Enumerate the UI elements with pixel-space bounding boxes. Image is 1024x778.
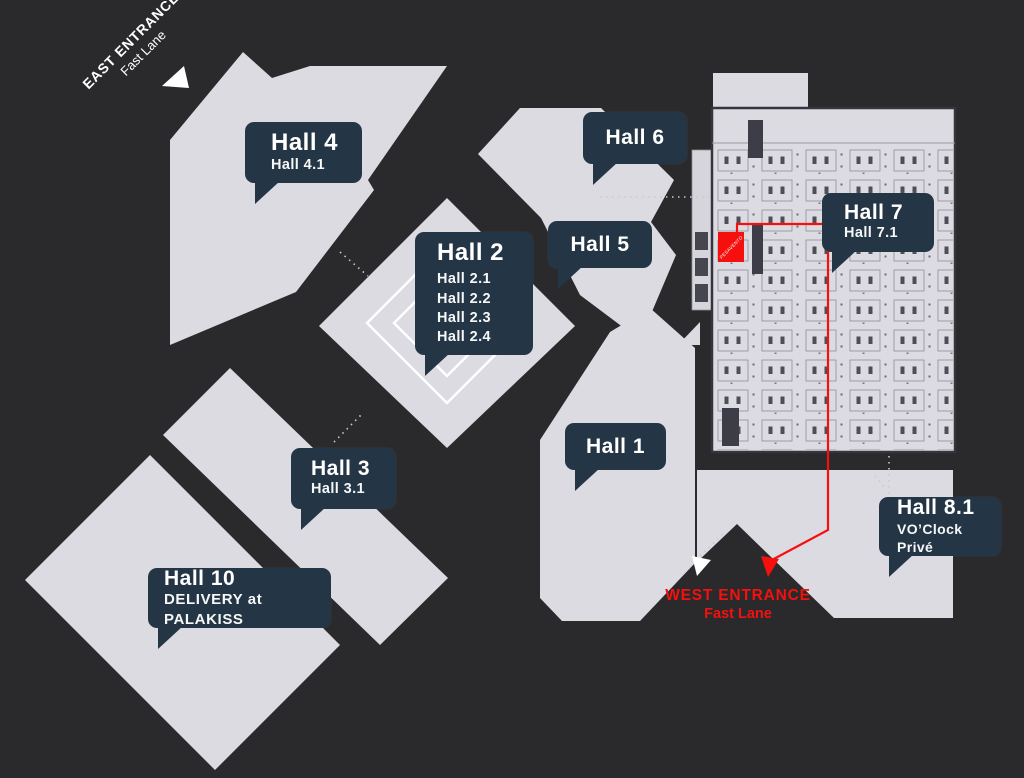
- hall-10-callout[interactable]: Hall 10 DELIVERY at PALAKISS: [148, 568, 331, 628]
- hall-2-subtitle: Hall 2.3: [437, 309, 519, 328]
- hall-1-title: Hall 1: [586, 435, 645, 458]
- floorplan-core-3: [722, 408, 739, 446]
- hall-7-callout[interactable]: Hall 7 Hall 7.1: [822, 193, 934, 252]
- dotted-path: [334, 414, 362, 442]
- hall-2-subtitle: Hall 2.2: [437, 290, 519, 309]
- hall-6-title: Hall 6: [605, 126, 664, 149]
- callout-tail: [158, 626, 183, 649]
- floorplan-booth-grid: [714, 145, 953, 450]
- west-entrance-label: WEST ENTRANCE Fast Lane: [655, 586, 821, 624]
- floorplan-core-1: [748, 120, 763, 158]
- callout-tail: [301, 507, 326, 530]
- west-entrance-red-arrow: [761, 556, 779, 577]
- callout-tail: [425, 353, 450, 376]
- hall-2-title: Hall 2: [437, 240, 519, 266]
- hall-3-subtitle: Hall 3.1: [311, 480, 382, 499]
- venue-map-canvas: PESAVENTO: [0, 0, 1024, 778]
- hall-8-1-title: Hall 8.1: [897, 496, 987, 519]
- callout-tail: [575, 468, 600, 491]
- hall-3-title: Hall 3: [311, 457, 382, 480]
- dotted-path: [340, 252, 368, 276]
- hall-1-callout[interactable]: Hall 1: [565, 423, 666, 470]
- west-entrance-white-arrow: [692, 556, 711, 576]
- hall-5-callout[interactable]: Hall 5: [548, 221, 652, 268]
- hall-2-subtitle: Hall 2.4: [437, 328, 519, 347]
- floorplan-core-2: [752, 224, 763, 274]
- east-entrance-arrow: [162, 66, 189, 88]
- west-entrance-subtitle: Fast Lane: [655, 605, 821, 623]
- hall-2-callout[interactable]: Hall 2 Hall 2.1 Hall 2.2 Hall 2.3 Hall 2…: [415, 232, 533, 355]
- hall-6-callout[interactable]: Hall 6: [583, 112, 687, 164]
- venue-map: PESAVENTO Hall 4 Hall 4.1 Hall 2 Hall 2.…: [0, 0, 1024, 778]
- hall-4-subtitle: Hall 4.1: [271, 156, 348, 175]
- hall-8-1-subtitle: VO’Clock Privé: [897, 520, 987, 557]
- floorplan-annex-tab: [713, 73, 808, 108]
- callout-tail: [593, 162, 618, 185]
- hall-2-subtitle: Hall 2.1: [437, 270, 519, 289]
- hall-10-subtitle: DELIVERY at PALAKISS: [164, 590, 317, 630]
- callout-tail: [255, 181, 280, 204]
- callout-tail: [558, 266, 583, 289]
- west-entrance-title: WEST ENTRANCE: [655, 586, 821, 605]
- hall-4-callout[interactable]: Hall 4 Hall 4.1: [245, 122, 362, 183]
- callout-tail: [832, 250, 857, 273]
- floorplan-stair-1: [695, 232, 708, 250]
- hall-4-title: Hall 4: [271, 130, 348, 156]
- floorplan-stair-3: [695, 284, 708, 302]
- hall-7-subtitle: Hall 7.1: [844, 224, 920, 243]
- callout-tail: [889, 554, 914, 577]
- hall-8-1-callout[interactable]: Hall 8.1 VO’Clock Privé: [879, 497, 1001, 556]
- hall-5-title: Hall 5: [570, 233, 629, 256]
- hall-7-title: Hall 7: [844, 201, 920, 224]
- floorplan-stair-2: [695, 258, 708, 276]
- hall-10-title: Hall 10: [164, 567, 317, 590]
- hall-3-callout[interactable]: Hall 3 Hall 3.1: [291, 448, 396, 509]
